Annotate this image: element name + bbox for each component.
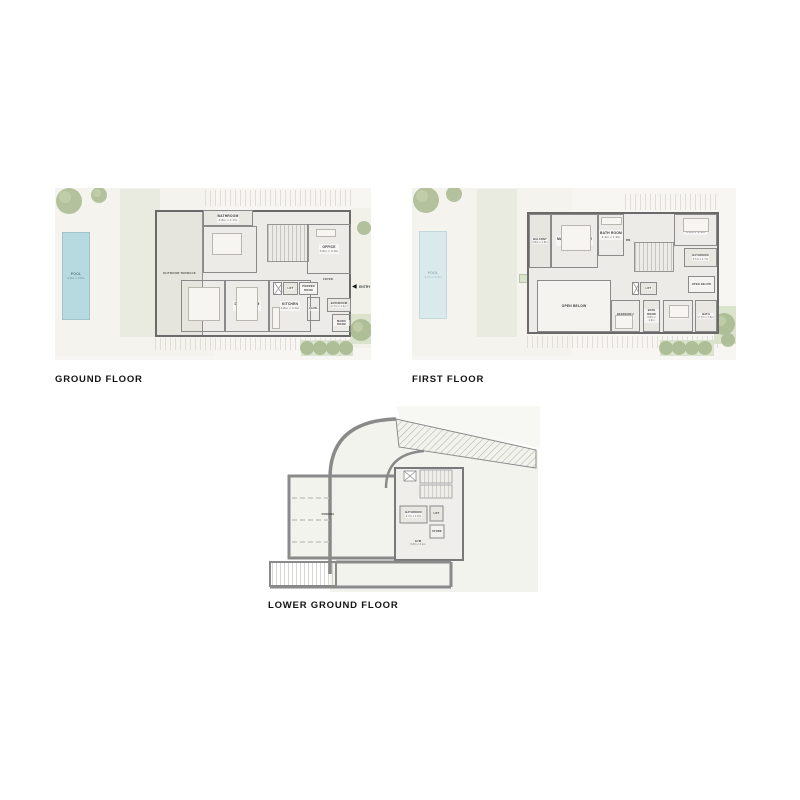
entry-marker: ◀ ENTRY [352,284,372,290]
shaft-first [632,282,639,295]
paving-strip-top [625,194,719,210]
parking-bay-lines [292,498,332,542]
room-bathroom-entry: BATHROOM2.7m x 1.4m [327,298,351,312]
kitchen-counter-icon [272,307,280,329]
shaft-cross-icon [274,282,281,295]
room-dims: 3.1m x 1.7m [692,258,708,261]
room-dining: DINING ROOM5.2m x 4.5m [225,280,269,332]
room-dims: 3.8m x 1.9m [644,316,659,323]
room-name: FOYER [323,278,333,281]
room-living: LIVING ROOM5.2m x 4.5m [181,280,225,332]
room-name: POWDER ROOM [300,285,317,292]
room-label: BALCONY3.8m x 1.8m [532,238,547,245]
room-bath-2: BATH ROOM3.8m x 1.9m [643,300,660,332]
pool: POOL 9.0m x 3.5m [62,232,90,320]
driveway-area [330,419,538,592]
room-dims: 2.7m x 1.8m [405,515,421,518]
room-dims: 4.4m x 1.9m [600,235,622,239]
room-name: OPEN BELOW [561,303,588,308]
site-upper-right [396,406,540,448]
room-master-bedroom: MASTER BEDROOM5.0m x 5.3m [551,214,598,268]
room-bathroom-4: BATHROOM3.1m x 1.7m [684,248,717,267]
room-label: BATHROOM3.1m x 1.7m [692,254,708,261]
room-label: BATH ROOM3.8m x 1.9m [644,309,659,322]
room-dims: 2.7m x 1.8m [698,316,713,319]
staircase-lower-flight1 [420,470,452,483]
bathtub-icon [601,217,622,225]
room-name: BATH ROOM [600,231,622,235]
room-dims: 3.8m x 1.8m [532,241,547,244]
paving-strip-bottom [155,338,351,350]
room-name: MAIDS ROOM [333,320,350,327]
room-name: BATH ROOM [647,309,656,315]
room-bath-3: BATH2.7m x 1.8m [695,300,717,332]
room-maids: MAIDS ROOM [332,314,351,332]
lower-ground-drawing [268,406,540,598]
staircase-first [634,242,674,272]
shaft-cross-icon [404,471,416,481]
room-name: KITCHEN [282,302,298,306]
shaft-cross-icon [633,282,638,295]
room-name: LIFT [645,287,651,290]
lower-ground-title: LOWER GROUND FLOOR [268,600,399,611]
driveway-inner-curve [386,451,424,488]
room-parking: PARKING [298,510,358,520]
dining-table-icon [236,287,258,321]
room-bathroom-top: BATHROOM3.8m x 1.7m [203,210,253,226]
room-bedroom-2: BEDROOM 24.2m x 3.7m [611,300,640,332]
room-office: OFFICE3.8m x 3.3m [307,224,351,274]
room-bedroom-5: BEDROOM 54.7m x 4.4m [203,226,257,273]
room-label: BATH ROOM4.4m x 1.9m [599,230,623,239]
room-name: OFFICE [322,245,335,249]
room-dims: 3.8m x 4.3m [281,306,300,310]
room-lift-lower: LIFT [430,508,443,520]
bed-icon [683,218,709,232]
entry-arrow-icon: ◀ [352,284,357,290]
room-name: OPEN BELOW [692,283,711,286]
room-label: KITCHEN3.8m x 4.3m [280,301,301,310]
room-foyer: FOYER [313,276,343,284]
bed-icon [561,225,591,251]
room-label: GYM3.8m x 4.1m [410,540,425,547]
floor-plan-sheet: { "titles": { "ground": "GROUND FLOOR", … [0,0,800,800]
room-dims: 9.0m x 3.5m [67,276,84,280]
room-bedroom-3: BEDROOM 33.8m x 3.7m [663,300,693,332]
paving-strip-top [205,190,351,206]
room-name: PARKING [322,513,335,516]
bed-icon [212,233,242,255]
first-floor-title: FIRST FLOOR [412,374,484,385]
room-name: OUTDOOR TERRACE [162,271,197,276]
exterior-stairs [270,562,336,586]
room-dims: 9.0m x 3.5m [424,275,441,279]
room-dims: 3.8m x 3.3m [320,249,339,253]
sofa-icon [188,287,220,321]
driveway-outer-curve [330,419,396,574]
room-bedroom-4: BEDROOM 43.8m x 4.4m [674,214,717,246]
paving-strip-bottom [527,336,719,348]
room-lift-ground: LIFT [283,282,298,295]
room-label: BATHROOM2.7m x 1.4m [331,302,347,309]
room-name: LAUN. [309,307,318,310]
room-gym: GYM3.8m x 4.1m [398,536,438,550]
shaft-ground [273,282,282,295]
bed-icon [669,305,689,318]
room-name: BATHROOM [218,214,239,218]
room-name: BATHROOM [405,511,421,514]
room-open-below-small: OPEN BELOW [688,276,715,293]
room-label: BATHROOM3.8m x 1.7m [217,213,240,222]
room-label: OFFICE3.8m x 3.3m [319,244,340,253]
staircase-ground [267,224,309,262]
lower-ground-plan: PARKING BATHROOM2.7m x 1.8m LIFT STORE G… [268,406,540,598]
lawn-band [120,189,160,337]
staircase-lower-flight2 [420,485,452,498]
ground-floor-plan: POOL 9.0m x 3.5m OUTDOOR TERRACE BATHROO… [55,188,371,366]
room-label: BATHROOM2.7m x 1.8m [405,511,421,518]
bed-icon [615,315,633,329]
ramp-hatched-band [396,419,536,468]
room-bathroom-lower: BATHROOM2.7m x 1.8m [400,507,427,522]
first-floor-plan: POOL 9.0m x 3.5m PLANTER BALCONY3.8m x 1… [412,188,736,366]
stairs-down-label: DN [626,238,630,242]
room-name: STORE [432,530,442,533]
ground-floor-title: GROUND FLOOR [55,374,143,385]
pool-below: POOL 9.0m x 3.5m [419,231,447,319]
room-lift-first: LIFT [640,282,657,295]
lawn-band [477,189,517,337]
room-open-below-large: OPEN BELOW [537,280,611,332]
room-dims: 3.8m x 4.1m [410,543,425,546]
room-master-bath: BATH ROOM4.4m x 1.9m [598,214,624,256]
room-balcony: BALCONY3.8m x 1.8m [529,214,551,268]
room-name: LIFT [433,512,439,515]
room-name: LIFT [287,287,293,290]
room-laundry: LAUN. [307,297,320,321]
site-area-right [351,208,371,348]
room-dims: 3.8m x 1.7m [218,218,239,222]
desk-icon [316,229,336,237]
room-label: BATH2.7m x 1.8m [698,313,713,320]
entry-label: ENTRY [358,284,371,289]
room-name: BATHROOM [692,254,708,257]
room-dims: 2.7m x 1.4m [331,305,347,308]
